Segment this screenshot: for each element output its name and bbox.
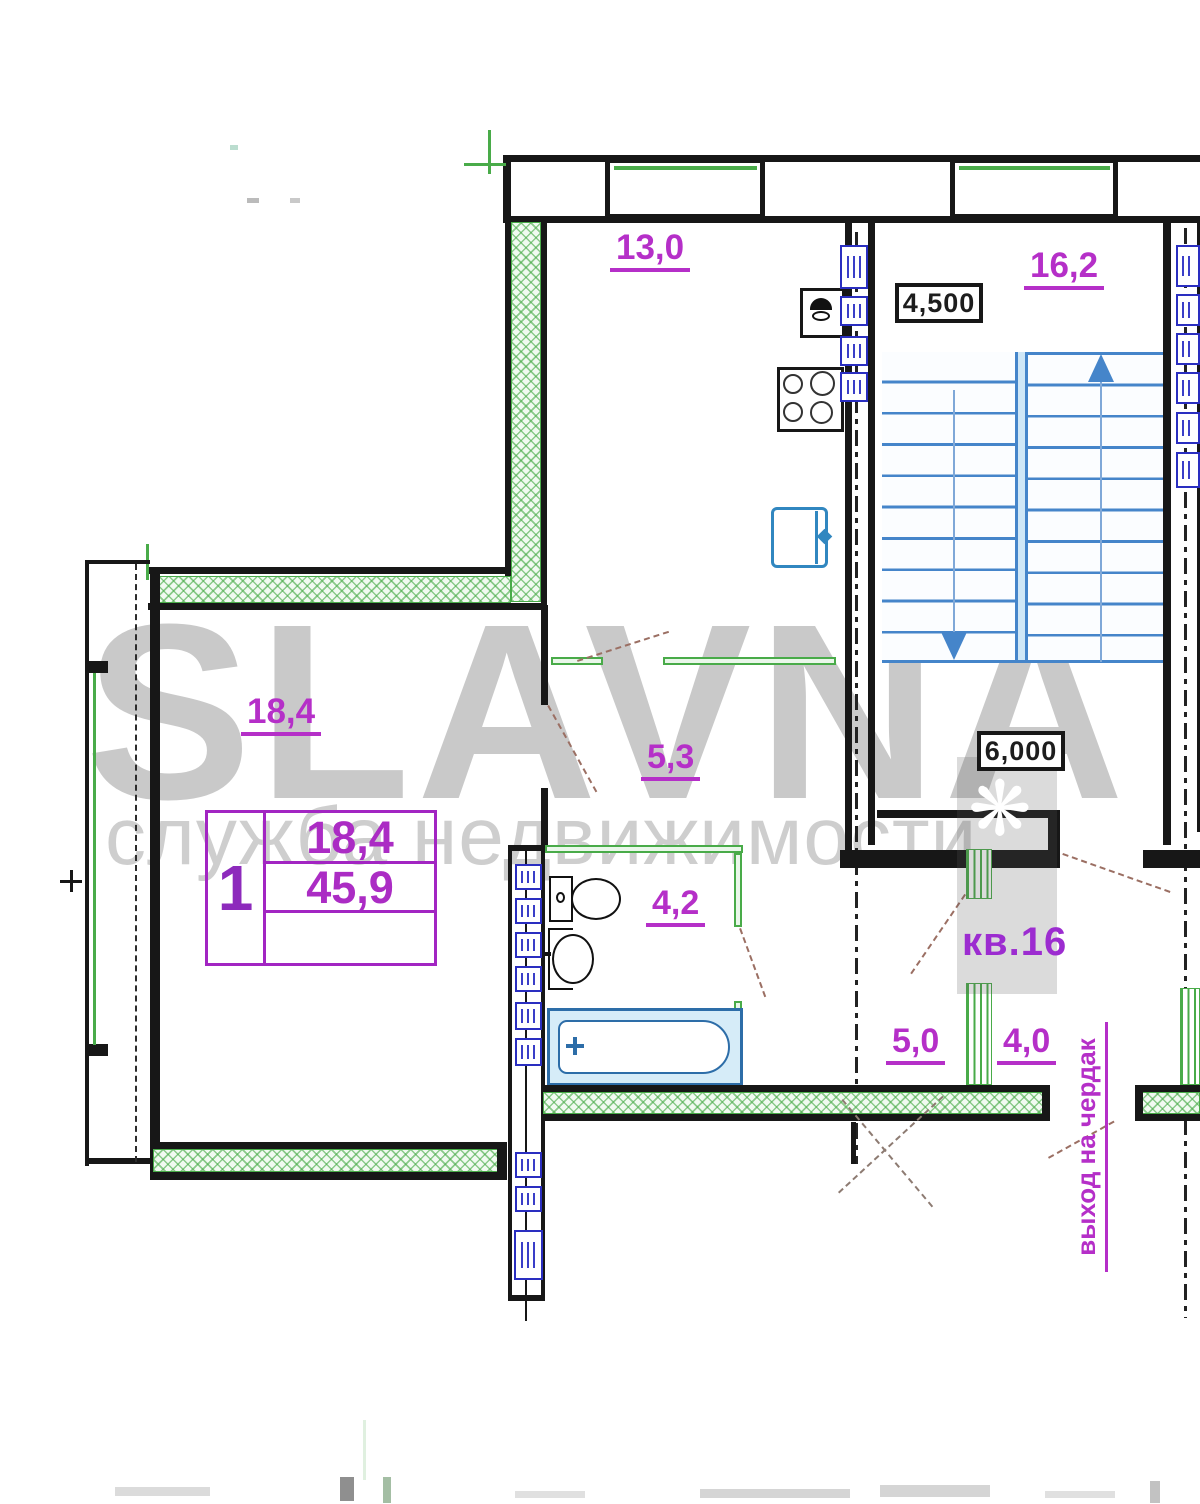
area-label-corridor: 5,0: [886, 1024, 945, 1065]
axis-tick-vertical: [70, 870, 73, 892]
wall-kitchen-right-edge: [541, 219, 547, 609]
table-living-area: 18,4: [266, 813, 434, 864]
toilet-button-icon: [556, 892, 565, 903]
balcony-window-notch-top: [88, 661, 108, 673]
wall-stair-right: [1163, 216, 1171, 845]
green-corner-tick-horizontal: [464, 163, 506, 166]
area-label-stairhall: 16,2: [1024, 248, 1104, 290]
elevation-box-lower: 6,000: [977, 731, 1065, 771]
stair-arrow-stem-down: [953, 390, 955, 635]
wall-bottom-a-insulated: [543, 1092, 1050, 1114]
apartment-info-table: 1 18,4 45,9: [205, 810, 437, 966]
attic-exit-label: выход на чердак: [1072, 1022, 1108, 1272]
wall-room-left: [150, 567, 160, 1180]
wall-room-bottom-cap: [497, 1142, 507, 1180]
apartment-number-label: кв.16: [962, 922, 1067, 962]
scan-smudge: [247, 198, 259, 203]
wall-bottom-a-cap: [1042, 1085, 1050, 1121]
scan-smudge: [115, 1487, 210, 1496]
wall-room-top-insulated: [153, 576, 511, 603]
scan-smudge: [700, 1489, 850, 1498]
riser-box: [840, 296, 868, 326]
table-empty-row: [266, 913, 434, 963]
shaft-left: [508, 845, 512, 1301]
stair-landing-edge: [882, 660, 1163, 663]
wall-room-top-edge: [148, 567, 511, 574]
scan-smudge: [363, 1420, 366, 1480]
area-label-living-room: 18,4: [241, 694, 321, 736]
scan-smudge: [230, 145, 238, 150]
riser-box: [514, 1230, 543, 1280]
riser-box: [1176, 412, 1200, 444]
riser-box: [1176, 294, 1200, 326]
balcony-dashed-line: [135, 564, 137, 1162]
balcony-left-line: [85, 560, 89, 1166]
wall-bottom-b-insulated: [1135, 1092, 1200, 1114]
riser-box: [515, 1002, 542, 1030]
riser-box: [840, 245, 868, 289]
balcony-top-line: [85, 560, 150, 564]
washbasin-bowl: [552, 934, 594, 984]
riser-box: [1176, 452, 1200, 488]
stair-flight-left: [882, 352, 1015, 663]
floor-plan-canvas: SLAVNA служба недвижимости: [0, 0, 1200, 1504]
stair-arrow-stem-up: [1100, 382, 1102, 662]
green-corner-tick-vertical: [488, 130, 491, 174]
scan-smudge: [515, 1491, 585, 1498]
balcony-window-notch-bottom: [88, 1044, 108, 1056]
wall-stair-bottom-right: [1143, 850, 1200, 868]
wall-bottom-b-top: [1135, 1085, 1200, 1092]
riser-box: [1176, 372, 1200, 404]
partition-bath-right-upper: [734, 853, 742, 927]
stair-flight-right: [1028, 352, 1163, 663]
wall-kitchen-left-insulated: [511, 222, 541, 602]
balcony-bottom-line: [85, 1158, 150, 1164]
riser-box: [515, 932, 542, 958]
door-swing-bathroom: [739, 928, 766, 997]
stove-burner: [783, 402, 803, 422]
partition-bath-top: [545, 845, 743, 853]
elevation-box-upper: 4,500: [895, 283, 983, 323]
window-glass-kitchen: [614, 166, 757, 170]
wall-tick-below-band: [851, 1122, 856, 1164]
riser-box: [840, 372, 868, 402]
flower-ornament-icon: ❋: [968, 772, 1032, 848]
riser-box: [840, 336, 868, 366]
bathtub-drain-icon: [573, 1037, 577, 1055]
area-label-hallway: 5,3: [641, 740, 700, 781]
wall-bottom-a-top: [543, 1085, 1050, 1092]
wall-room-hall-upper: [541, 605, 548, 705]
riser-box: [1176, 333, 1200, 365]
area-label-kitchen: 13,0: [610, 230, 690, 272]
wall-room-bottom-top: [150, 1142, 507, 1149]
stove-burner: [810, 401, 833, 424]
scan-smudge: [1045, 1491, 1115, 1498]
stair-stringer: [1015, 352, 1028, 663]
scan-smudge: [290, 198, 300, 203]
toilet-bowl: [571, 878, 621, 920]
wall-bottom-a-bottom: [543, 1114, 1050, 1121]
wall-room-top-bottom-edge: [148, 603, 547, 610]
stove-burner: [783, 374, 803, 394]
wall-room-bottom-bottom: [150, 1172, 507, 1180]
partition-right-edge: [1180, 988, 1200, 1085]
riser-box: [515, 864, 542, 890]
kitchen-sink-bowl: [812, 311, 830, 321]
riser-box: [515, 1038, 542, 1066]
scan-smudge: [880, 1485, 990, 1497]
wall-room-bottom-insulated: [153, 1149, 500, 1172]
stair-arrow-up-icon: [1088, 354, 1114, 382]
riser-box: [515, 1186, 542, 1212]
stair-arrow-down-icon: [941, 632, 967, 660]
riser-box: [1176, 245, 1200, 287]
scan-smudge: [340, 1477, 354, 1501]
wall-bottom-b-cap: [1135, 1085, 1143, 1121]
riser-box: [515, 1152, 542, 1178]
wall-room-hall-lower: [541, 788, 548, 848]
wall-stair-left-b: [868, 216, 875, 845]
balcony-window-glass: [93, 673, 96, 1045]
window-glass-stairwell: [959, 166, 1110, 170]
partition-kitchen-hall-right: [663, 657, 836, 665]
partition-kv16-lower: [966, 983, 992, 1085]
table-total-area: 45,9: [266, 864, 434, 913]
table-areas-column: 18,4 45,9: [266, 813, 434, 963]
riser-box: [515, 898, 542, 924]
area-label-storage: 4,0: [997, 1024, 1056, 1065]
area-label-bathroom: 4,2: [646, 886, 705, 927]
stove-burner: [810, 371, 835, 396]
riser-box: [515, 966, 542, 992]
table-room-count: 1: [208, 813, 266, 963]
scan-smudge: [1150, 1481, 1160, 1503]
wall-bottom-b-bottom: [1135, 1114, 1200, 1121]
scan-smudge: [383, 1477, 391, 1503]
